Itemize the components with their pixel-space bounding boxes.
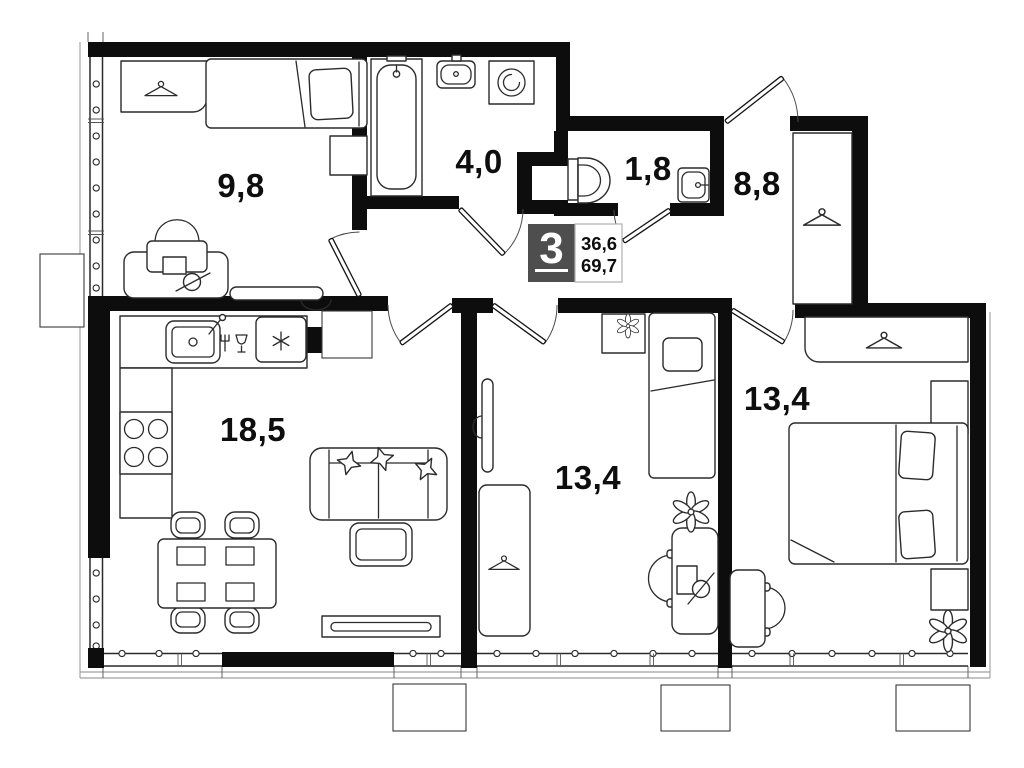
floor-plan: 9,8 4,0 1,8 8,8	[0, 0, 1024, 768]
bag-handle	[155, 220, 199, 243]
bed-pillow	[309, 68, 354, 120]
bench	[230, 287, 323, 300]
room-label-hallway: 8,8	[733, 165, 780, 202]
mirror	[482, 379, 493, 472]
ac-unit-bottom-2	[661, 685, 730, 731]
door-room-middle	[492, 303, 557, 344]
badge-living-area: 36,6	[581, 233, 617, 254]
nightstand	[330, 136, 367, 175]
room-label-bedroom-right: 13,4	[744, 380, 810, 417]
bathtub-tap	[387, 56, 406, 61]
toilet-tank	[568, 159, 578, 200]
ac-unit-bottom-1	[393, 684, 466, 731]
door-bedroom-top-left	[328, 232, 361, 297]
room-bathroom: 4,0	[371, 55, 534, 196]
bed-pillow	[663, 338, 702, 371]
desk	[730, 570, 765, 647]
ac-unit-left	[40, 254, 84, 327]
bed-pillow	[898, 510, 935, 559]
window-bottom-kitchen-right	[394, 650, 461, 666]
faucet-icon	[220, 315, 226, 321]
window-left-kitchen	[90, 556, 103, 650]
room-hallway: 8,8	[733, 133, 852, 304]
room-label-wc: 1,8	[624, 150, 671, 187]
nightstand	[931, 569, 968, 610]
dining-table	[158, 539, 276, 608]
plant-icon	[928, 610, 969, 652]
washing-machine	[489, 61, 534, 104]
room-label-kitchen-living: 18,5	[220, 411, 286, 448]
room-label-bathroom: 4,0	[455, 143, 502, 180]
desk-chair	[648, 555, 672, 602]
room-middle: 13,4	[473, 313, 718, 636]
double-bed	[789, 423, 968, 564]
door-bedroom-right	[731, 308, 793, 344]
window-bottom-bedroom-right	[732, 650, 968, 666]
window-left-bedroom	[88, 57, 104, 296]
hallway-wardrobe	[793, 133, 852, 304]
ac-unit-bottom-3	[896, 685, 970, 731]
room-bedroom-right: 13,4	[730, 317, 968, 652]
door-kitchen	[388, 303, 453, 345]
badge-room-count: 3	[539, 224, 563, 273]
room-wc: 1,8	[568, 150, 709, 203]
bed-pillow	[898, 431, 935, 480]
door-bathroom	[458, 207, 523, 255]
badge-total-area: 69,7	[581, 255, 617, 276]
room-kitchen-living: 18,5	[120, 315, 447, 638]
desk-chair	[764, 587, 785, 629]
kitchen-duct-niche	[322, 311, 372, 358]
room-label-middle: 13,4	[555, 459, 621, 496]
wardrobe	[121, 61, 207, 112]
bag-clasp	[163, 257, 186, 274]
apartment-badge: 3 36,6 69,7	[528, 224, 622, 282]
room-label-bedroom-top-left: 9,8	[217, 167, 264, 204]
door-entrance	[725, 76, 798, 124]
tv-stand	[322, 616, 440, 637]
window-bottom-kitchen-left	[103, 650, 222, 666]
plant-icon	[671, 492, 710, 532]
room-bedroom-top-left: 9,8	[121, 59, 367, 310]
window-bottom-room-middle	[477, 650, 718, 666]
badge-underline	[535, 269, 568, 272]
